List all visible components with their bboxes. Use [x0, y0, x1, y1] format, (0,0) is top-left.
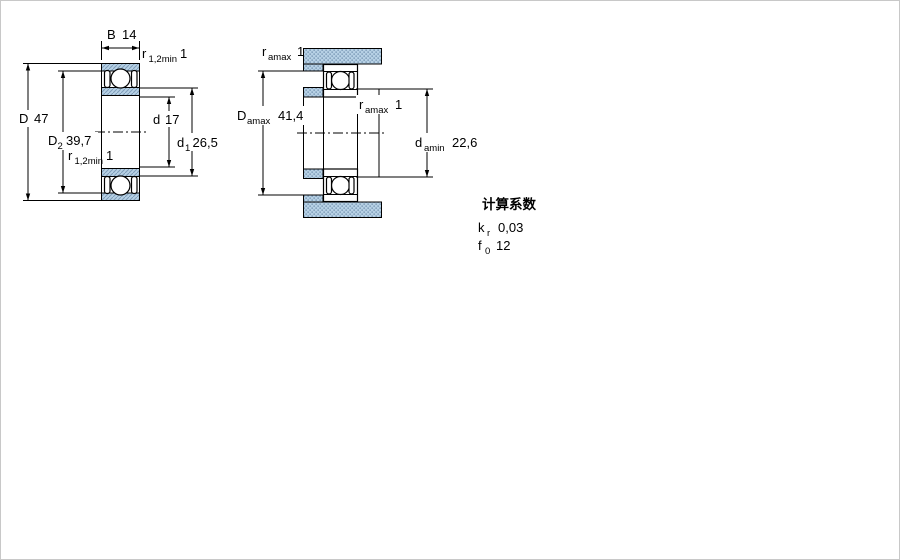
dim-Damax-symbol: D	[237, 108, 246, 123]
mounted-ball-top	[332, 72, 350, 90]
housing-shoulder-top	[304, 64, 324, 71]
housing-bottom	[304, 202, 382, 218]
dim-Damax-subscript: amax	[247, 116, 270, 127]
mounted-bearing-figure	[297, 65, 384, 202]
shield-bottom-left	[105, 177, 111, 194]
dim-r12-bottom-value: 1	[106, 148, 113, 163]
dim-Damax-value: 41,4	[278, 108, 303, 123]
dim-d-value: 17	[165, 112, 179, 127]
factor-f0-symbol: f	[478, 238, 482, 253]
dim-d1-subscript: 1	[185, 143, 190, 154]
shaft-shoulder-bottom	[304, 169, 324, 179]
mounted-shield-top-left	[327, 72, 332, 89]
dim-d1: d 1 26,5	[140, 88, 221, 176]
dim-r12-bottom: r 1,2min 1	[68, 148, 113, 167]
factor-f0-value: 12	[496, 238, 510, 253]
dim-D-value: 47	[34, 111, 48, 126]
dim-ramax-mid-value: 1	[395, 97, 402, 112]
dim-D-symbol: D	[19, 111, 28, 126]
mounted-shield-top-right	[349, 72, 354, 89]
dim-ramax-top-subscript: amax	[268, 52, 291, 63]
shield-top-right	[132, 71, 138, 88]
mounted-shield-bottom-left	[327, 177, 332, 194]
bearing-figure	[95, 64, 146, 201]
ball-bottom	[111, 176, 130, 195]
dim-damin-subscript: amin	[424, 143, 445, 154]
inner-ring-top	[102, 88, 140, 96]
dim-D2-value: 39,7	[66, 133, 91, 148]
dim-D2: D 2 39,7	[45, 71, 102, 193]
technical-drawing-canvas: B 14 r 1,2min 1 D 47 D 2 39,7	[1, 1, 899, 559]
ball-top	[111, 69, 130, 88]
shield-top-left	[105, 71, 111, 88]
factor-row-kr: k r 0,03	[478, 220, 523, 239]
dim-r12-top-symbol: r	[142, 46, 147, 61]
dim-damin-value: 22,6	[452, 135, 477, 150]
factor-row-f0: f 0 12	[478, 238, 510, 257]
dim-B-symbol: B	[107, 27, 116, 42]
housing-top	[304, 49, 382, 65]
dim-r12-top: r 1,2min 1	[142, 46, 187, 65]
dim-r12-bottom-symbol: r	[68, 148, 73, 163]
dim-ramax-mid-subscript: amax	[365, 105, 388, 116]
dim-Damax: D amax 41,4	[234, 71, 305, 195]
dim-r12-top-subscript: 1,2min	[149, 54, 178, 65]
inner-ring-bottom	[102, 169, 140, 177]
factor-kr-subscript: r	[487, 228, 490, 239]
dim-d-symbol: d	[153, 112, 160, 127]
dim-ramax-top: r amax 1	[262, 44, 304, 63]
dim-B-value: 14	[122, 27, 136, 42]
factor-kr-symbol: k	[478, 220, 485, 235]
calculation-factors-block: 计算系数 k r 0,03 f 0 12	[478, 196, 536, 257]
calculation-factors-title: 计算系数	[482, 196, 536, 212]
mounted-ball-bottom	[332, 177, 350, 195]
dim-r12-bottom-subscript: 1,2min	[75, 156, 104, 167]
abutment-dimensions-drawing: r amax 1 D amax 41,4 r amax 1 d	[234, 44, 478, 218]
housing-shoulder-bottom	[304, 195, 324, 202]
dim-D2-symbol: D	[48, 133, 57, 148]
mounted-shield-bottom-right	[349, 177, 354, 194]
bearing-cross-section-drawing: B 14 r 1,2min 1 D 47 D 2 39,7	[16, 27, 220, 201]
shield-bottom-right	[132, 177, 138, 194]
dim-ramax-top-value: 1	[297, 44, 304, 59]
dim-d1-symbol: d	[177, 135, 184, 150]
factor-kr-value: 0,03	[498, 220, 523, 235]
shaft-shoulder-top	[304, 88, 324, 98]
dim-damin-symbol: d	[415, 135, 422, 150]
dim-ramax-top-symbol: r	[262, 44, 267, 59]
dim-r12-top-value: 1	[180, 46, 187, 61]
dim-d1-value: 26,5	[193, 135, 218, 150]
dim-B: B 14	[102, 27, 140, 60]
dim-ramax-mid: r amax 1	[356, 95, 406, 116]
dim-ramax-mid-symbol: r	[359, 97, 364, 112]
drawing-page: B 14 r 1,2min 1 D 47 D 2 39,7	[0, 0, 900, 560]
dim-D2-subscript: 2	[58, 141, 63, 152]
factor-f0-subscript: 0	[485, 246, 490, 257]
